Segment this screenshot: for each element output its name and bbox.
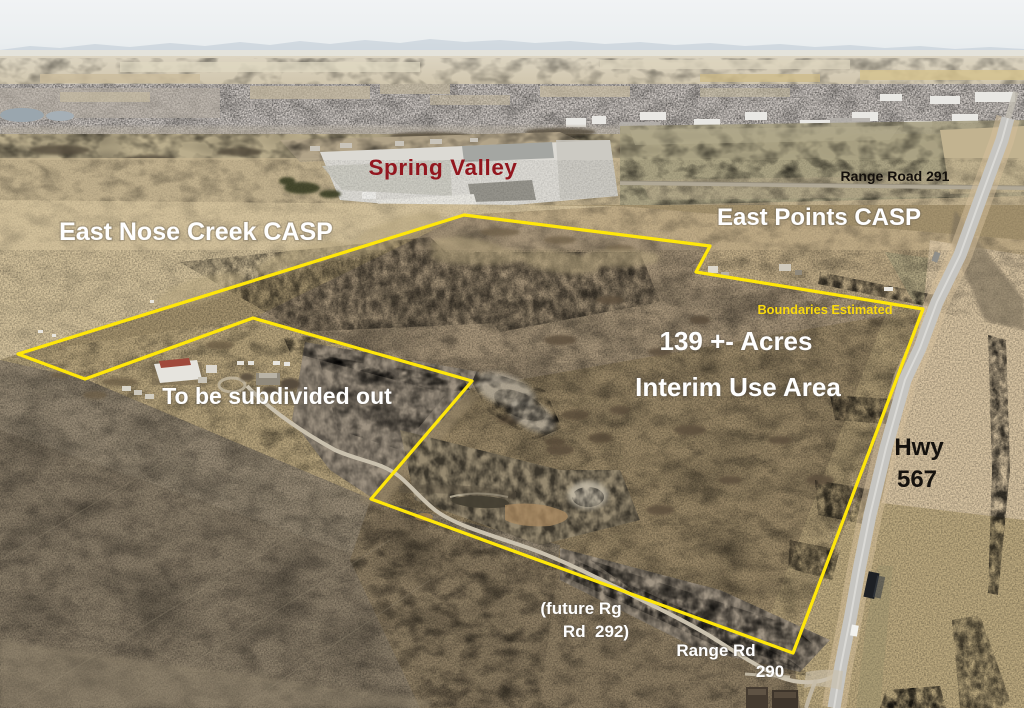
svg-text:567: 567 (897, 466, 937, 493)
svg-text:290: 290 (756, 662, 784, 681)
svg-text:East Nose Creek CASP: East Nose Creek CASP (59, 218, 333, 246)
svg-text:(future Rg: (future Rg (540, 599, 621, 618)
svg-text:Range Road 291: Range Road 291 (841, 168, 950, 184)
svg-text:Boundaries Estimated: Boundaries Estimated (757, 302, 892, 317)
svg-text:Hwy: Hwy (894, 434, 944, 461)
svg-text:Rd 292): Rd 292) (563, 622, 629, 641)
svg-text:To be subdivided out: To be subdivided out (162, 383, 392, 409)
svg-text:139 +- Acres: 139 +- Acres (660, 326, 813, 356)
svg-text:Range Rd: Range Rd (676, 641, 755, 660)
svg-text:Interim Use Area: Interim Use Area (635, 372, 841, 402)
svg-text:East Points CASP: East Points CASP (717, 204, 921, 231)
svg-text:Spring Valley: Spring Valley (368, 155, 517, 180)
